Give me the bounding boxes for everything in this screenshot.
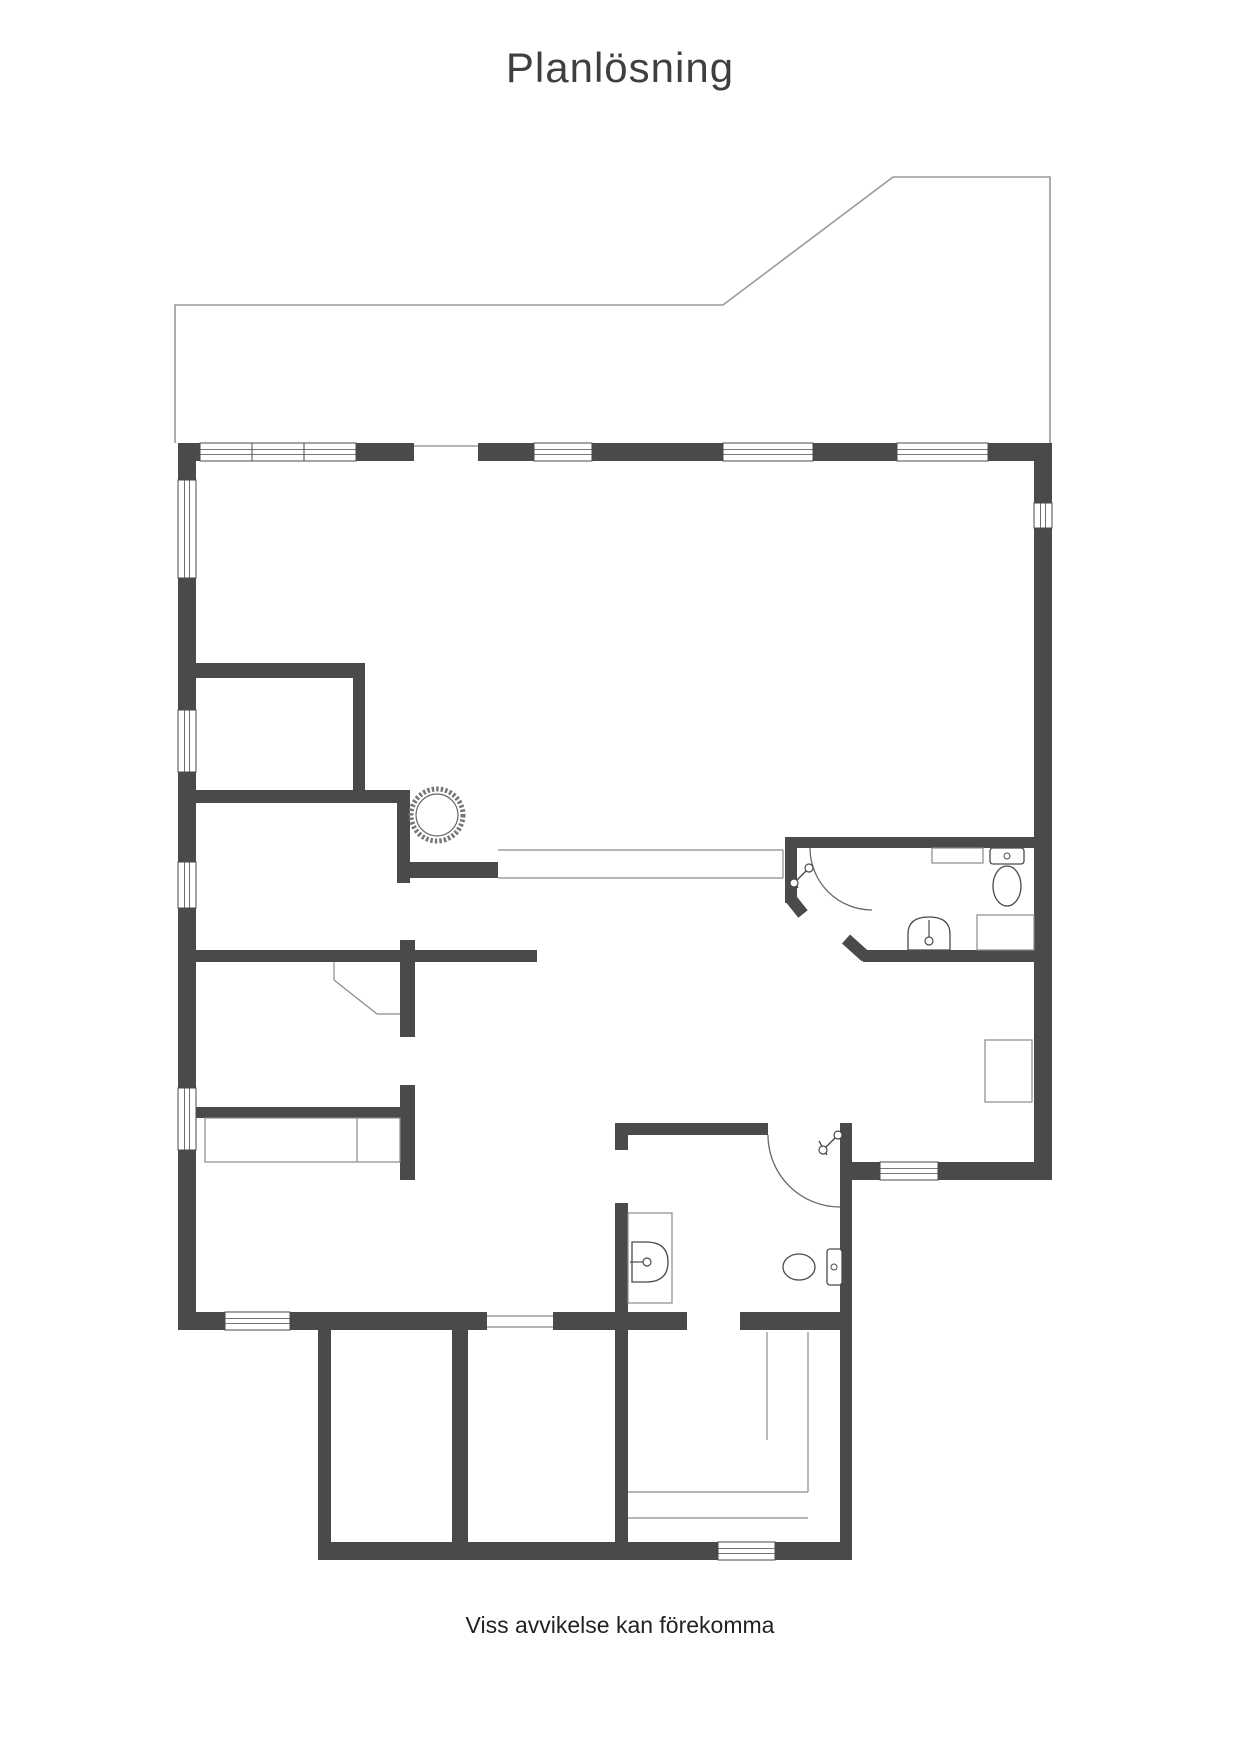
wall [196,663,365,678]
wall [178,461,196,480]
window-frame [178,710,196,772]
window-frame [1034,503,1052,528]
page-title: Planlösning [0,44,1240,92]
floorplan-svg [0,0,1240,1754]
sink-tap-knob [643,1258,651,1266]
thin-line [334,980,377,1014]
toilet [783,1249,842,1285]
sink [908,917,950,950]
wall [1034,461,1052,503]
wall [813,443,897,461]
toilet-tank [990,848,1024,864]
window-frame [718,1542,775,1560]
wall [410,862,498,878]
wall [1034,528,1052,1162]
window-frame [178,1088,196,1150]
window [178,480,196,578]
window [178,710,196,772]
floorplan [0,0,1240,1754]
toilet-bowl [783,1254,815,1280]
window-frame [178,862,196,908]
wardrobe [985,1040,1032,1102]
valve-knob [834,1131,842,1139]
window-frame [304,443,356,461]
toilet [990,848,1024,906]
wall [840,1123,852,1542]
wall [196,1107,400,1118]
wall [178,1312,487,1330]
stove [411,789,463,841]
wall [617,1123,768,1135]
window [304,443,356,461]
valve-knob [790,879,798,887]
shelf [932,848,983,863]
wall [785,837,1034,848]
wall [178,578,196,710]
wall [196,790,410,803]
window [252,443,304,461]
wall [740,1312,852,1330]
wall [615,1203,628,1542]
wall [452,1330,468,1542]
window [200,443,252,461]
wall [196,950,537,962]
wall [863,950,1034,962]
wall-angled [846,939,866,957]
door-arc [810,848,872,910]
window [534,443,592,461]
window-frame [200,443,252,461]
window-frame [723,443,813,461]
window [225,1312,290,1330]
window-frame [178,480,196,578]
valve-knob [819,1146,827,1154]
window [178,1088,196,1150]
sink [630,1242,668,1282]
door-arc [768,1135,840,1207]
window-frame [225,1312,290,1330]
window-frame [252,443,304,461]
wall [178,908,196,1088]
window-frame [880,1162,938,1180]
wall [178,1150,196,1312]
window [880,1162,938,1180]
wall-angled [791,899,803,914]
window [723,443,813,461]
window [897,443,988,461]
wall [400,940,415,1037]
window [178,862,196,908]
shower-corner [977,915,1034,950]
wall [785,837,797,903]
toilet-tank [827,1249,842,1285]
wall [356,443,414,461]
wall [400,1085,415,1180]
wall [178,443,200,461]
shower-valve [819,1131,842,1155]
wall [178,772,196,862]
wall [353,678,365,790]
stove-body [416,794,458,836]
valve-knob [805,864,813,872]
window-frame [534,443,592,461]
window [1034,503,1052,528]
wall [592,443,723,461]
deck-outline [175,177,1050,443]
walls [178,443,1052,1560]
wall [397,803,410,883]
toilet-bowl [993,866,1021,906]
sink-tap-knob [925,937,933,945]
window-frame [897,443,988,461]
wall [478,443,534,461]
wall [318,1330,331,1542]
wall [988,443,1052,461]
disclaimer-text: Viss avvikelse kan förekomma [0,1612,1240,1639]
closet [205,1118,400,1162]
window [718,1542,775,1560]
